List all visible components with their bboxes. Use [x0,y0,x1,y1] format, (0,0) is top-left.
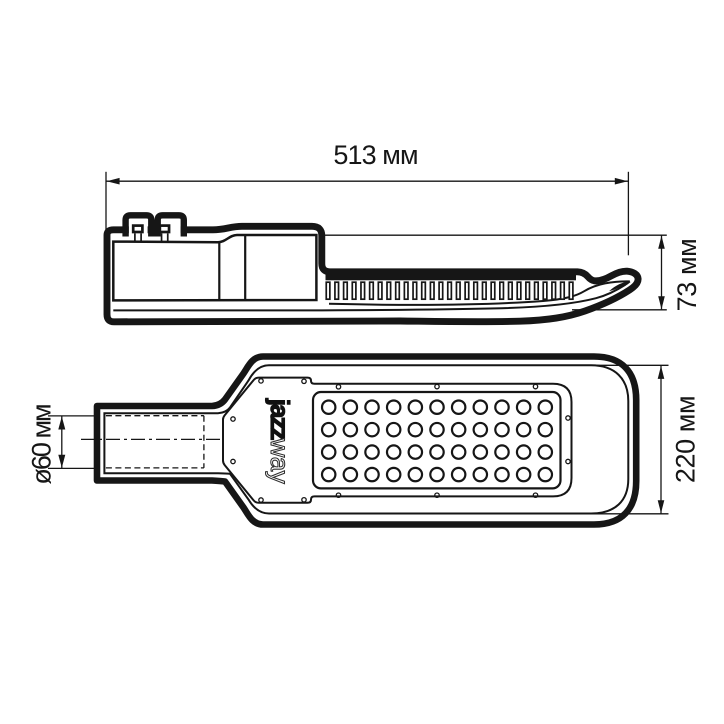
svg-text:73 мм: 73 мм [672,239,702,312]
svg-text:220 мм: 220 мм [671,396,701,483]
svg-text:ø60 мм: ø60 мм [27,405,57,485]
svg-text:jazzway: jazzway [265,398,295,484]
svg-text:513 мм: 513 мм [333,140,417,170]
